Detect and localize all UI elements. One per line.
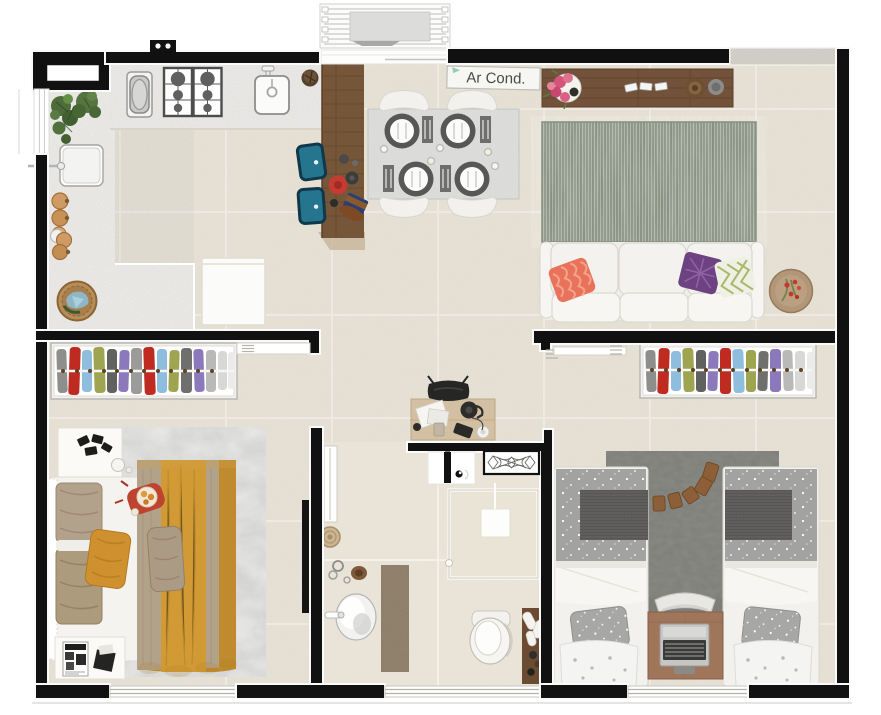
- svg-text:Ar Cond.: Ar Cond.: [466, 69, 526, 87]
